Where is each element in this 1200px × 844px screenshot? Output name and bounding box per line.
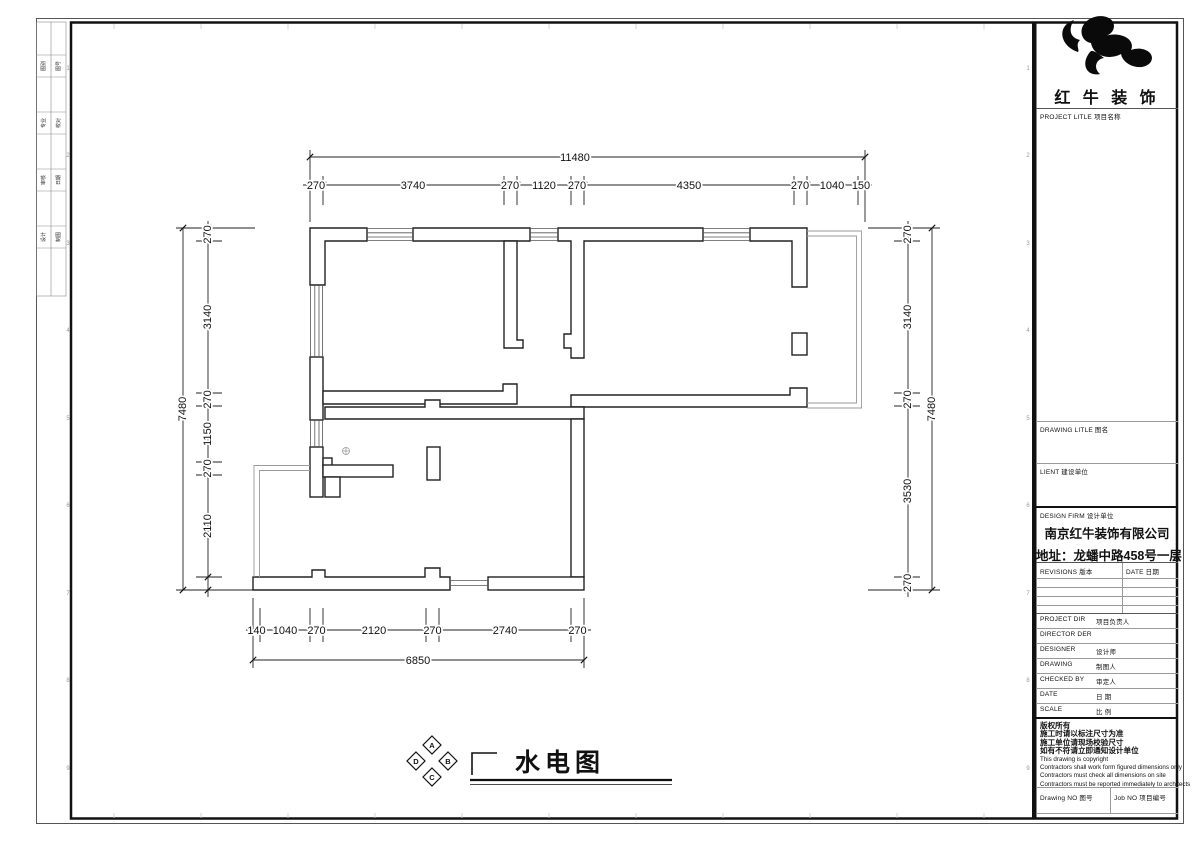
wall-left-pier xyxy=(310,447,323,497)
svg-text:审核: 审核 xyxy=(40,175,47,185)
dim-top: 11480 270 3740 270 1120 270 4350 270 104… xyxy=(303,150,872,222)
duct xyxy=(792,333,807,355)
row-date: DATE 日 期 xyxy=(1036,688,1178,703)
wall-interior-b xyxy=(571,388,807,407)
light-symbol xyxy=(343,448,350,455)
svg-text:270: 270 xyxy=(202,390,214,408)
frame-row-numbers-left: 1 2 3 4 5 6 7 8 9 xyxy=(66,66,70,772)
wall-bottom-right xyxy=(488,577,584,590)
svg-text:2: 2 xyxy=(66,153,70,159)
project-title-section: PROJECT LITLE 项目名称 xyxy=(1036,108,1178,421)
svg-text:专业: 专业 xyxy=(40,118,47,128)
title-block: 红 牛 装 饰 PROJECT LITLE 项目名称 DRAWING LITLE… xyxy=(1036,22,1178,820)
pier-block xyxy=(325,477,340,497)
svg-text:270: 270 xyxy=(568,625,586,637)
plan-walls xyxy=(253,228,807,590)
wall-right-lower xyxy=(571,419,584,577)
svg-text:270: 270 xyxy=(568,180,586,192)
door-threshold xyxy=(450,581,488,586)
drawing-no-divider xyxy=(1110,788,1111,813)
dim-right: 7480 270 3140 270 3530 270 xyxy=(868,221,940,597)
revisions-label: REVISIONS 版本 xyxy=(1036,564,1093,576)
client-section: LIENT 建设单位 xyxy=(1036,463,1178,506)
wall-bottom-left xyxy=(253,568,450,590)
row-director: DIRECTOR DER xyxy=(1036,628,1178,643)
date-col-label: DATE 日期 xyxy=(1122,564,1159,576)
compass-symbol: A B C D xyxy=(407,736,457,786)
frame-row-numbers-right: 1 2 3 4 5 6 7 8 9 xyxy=(1026,66,1030,772)
svg-text:5: 5 xyxy=(66,416,70,422)
design-firm-label: DESIGN FIRM 设计单位 xyxy=(1036,508,1178,520)
svg-text:3140: 3140 xyxy=(902,305,914,329)
design-firm-section: DESIGN FIRM 设计单位 南京红牛装饰有限公司 地址：龙蟠中路458号一… xyxy=(1036,506,1178,562)
svg-text:3530: 3530 xyxy=(902,479,914,503)
drawing-no-label: Drawing NO 图号 xyxy=(1036,790,1093,802)
wall-interior-vertical xyxy=(504,241,523,348)
wall-kitchen-bar xyxy=(323,465,393,477)
svg-text:3: 3 xyxy=(1026,241,1030,247)
svg-text:图号: 图号 xyxy=(56,61,62,71)
svg-text:9: 9 xyxy=(66,766,70,772)
svg-text:270: 270 xyxy=(307,625,325,637)
svg-text:C: C xyxy=(429,773,435,782)
svg-text:4: 4 xyxy=(1026,328,1030,334)
svg-text:6: 6 xyxy=(66,503,70,509)
svg-text:7480: 7480 xyxy=(926,397,938,421)
svg-text:7: 7 xyxy=(66,591,70,597)
svg-text:D: D xyxy=(413,757,419,766)
dim-bottom: 6850 140 1040 270 2120 270 2740 270 xyxy=(246,598,591,668)
wall-top-right-with-leg xyxy=(750,228,807,287)
svg-text:4350: 4350 xyxy=(677,180,701,192)
svg-text:B: B xyxy=(445,757,451,766)
svg-text:日期: 日期 xyxy=(56,175,62,185)
drawing-title-section: DRAWING LITLE 图名 xyxy=(1036,421,1178,463)
svg-text:7480: 7480 xyxy=(177,397,189,421)
sign-strip: 图别 图号 专业 校对 审核 日期 设计 制图 xyxy=(37,22,67,296)
wall-top-mid xyxy=(413,228,530,241)
row-project-dir: PROJECT DIR 项目负责人 xyxy=(1036,613,1178,628)
svg-text:7: 7 xyxy=(1026,591,1030,597)
svg-text:1040: 1040 xyxy=(273,625,297,637)
svg-text:图别: 图别 xyxy=(40,61,47,71)
svg-text:4: 4 xyxy=(66,328,70,334)
svg-text:270: 270 xyxy=(501,180,519,192)
svg-text:3740: 3740 xyxy=(401,180,425,192)
page-frame xyxy=(37,19,1184,824)
svg-text:校对: 校对 xyxy=(55,118,62,128)
svg-text:1: 1 xyxy=(66,66,70,72)
svg-text:2740: 2740 xyxy=(493,625,517,637)
svg-text:6850: 6850 xyxy=(406,655,430,667)
wall-top-with-leg xyxy=(558,228,703,358)
drawing-no-section: Drawing NO 图号 Job NO 项目编号 xyxy=(1036,787,1178,814)
svg-text:270: 270 xyxy=(202,225,214,243)
svg-text:1: 1 xyxy=(1026,66,1030,72)
row-designer: DESIGNER 设计师 xyxy=(1036,643,1178,658)
svg-text:8: 8 xyxy=(1026,678,1030,684)
column xyxy=(427,447,440,480)
firm-name: 南京红牛装饰有限公司 xyxy=(1036,523,1178,542)
svg-text:270: 270 xyxy=(202,459,214,477)
svg-text:2110: 2110 xyxy=(202,514,214,538)
svg-text:270: 270 xyxy=(902,574,914,592)
drawing-sheet: 1 2 3 4 5 6 7 8 9 1 2 3 4 5 6 7 8 9 图别 图… xyxy=(0,0,1200,844)
job-no-label: Job NO 项目编号 xyxy=(1110,790,1166,802)
copyright-block: 版权所有 施工时请以标注尺寸为准 施工单位请现场校验尺寸 如有不符请立即通知设计… xyxy=(1036,717,1178,787)
svg-text:1150: 1150 xyxy=(202,422,214,446)
svg-text:270: 270 xyxy=(902,390,914,408)
svg-text:11480: 11480 xyxy=(560,152,590,164)
svg-text:A: A xyxy=(429,741,435,750)
svg-text:9: 9 xyxy=(1026,766,1030,772)
drawing-title-label: DRAWING LITLE 图名 xyxy=(1036,422,1178,434)
wall-left-mid xyxy=(310,357,323,420)
drawing-title-text: 水电图 xyxy=(515,749,605,777)
svg-text:1120: 1120 xyxy=(532,180,556,192)
fold-ticks-top xyxy=(114,24,984,29)
svg-text:270: 270 xyxy=(902,225,914,243)
project-title-label: PROJECT LITLE 项目名称 xyxy=(1036,109,1178,121)
title-corner-mark xyxy=(472,753,497,775)
brand-name: 红 牛 装 饰 xyxy=(1036,84,1178,108)
svg-text:270: 270 xyxy=(791,180,809,192)
row-drawing: DRAWING 制图人 xyxy=(1036,658,1178,673)
svg-text:140: 140 xyxy=(247,625,265,637)
svg-text:制图: 制图 xyxy=(55,232,62,242)
svg-text:6: 6 xyxy=(1026,503,1030,509)
client-label: LIENT 建设单位 xyxy=(1036,464,1178,476)
svg-text:270: 270 xyxy=(307,180,325,192)
svg-text:3140: 3140 xyxy=(202,305,214,329)
wall-top-left-corner xyxy=(310,228,367,285)
wall-interior-a xyxy=(323,384,517,404)
dim-left: 7480 270 3140 270 1150 270 2110 xyxy=(176,221,255,597)
row-checked-by: CHECKED BY 审定人 xyxy=(1036,673,1178,688)
svg-text:1040: 1040 xyxy=(820,180,844,192)
svg-text:3: 3 xyxy=(66,241,70,247)
svg-text:5: 5 xyxy=(1026,416,1030,422)
svg-text:设计: 设计 xyxy=(40,232,47,242)
svg-text:8: 8 xyxy=(66,678,70,684)
drawing-title: 水电图 xyxy=(470,749,672,785)
svg-text:150: 150 xyxy=(852,180,870,192)
row-scale: SCALE 比 例 xyxy=(1036,703,1178,717)
plan-canvas: 1 2 3 4 5 6 7 8 9 1 2 3 4 5 6 7 8 9 图别 图… xyxy=(0,0,1200,844)
svg-text:2: 2 xyxy=(1026,153,1030,159)
svg-text:2120: 2120 xyxy=(362,625,386,637)
revisions-section: REVISIONS 版本 DATE 日期 xyxy=(1036,562,1178,613)
svg-text:270: 270 xyxy=(423,625,441,637)
